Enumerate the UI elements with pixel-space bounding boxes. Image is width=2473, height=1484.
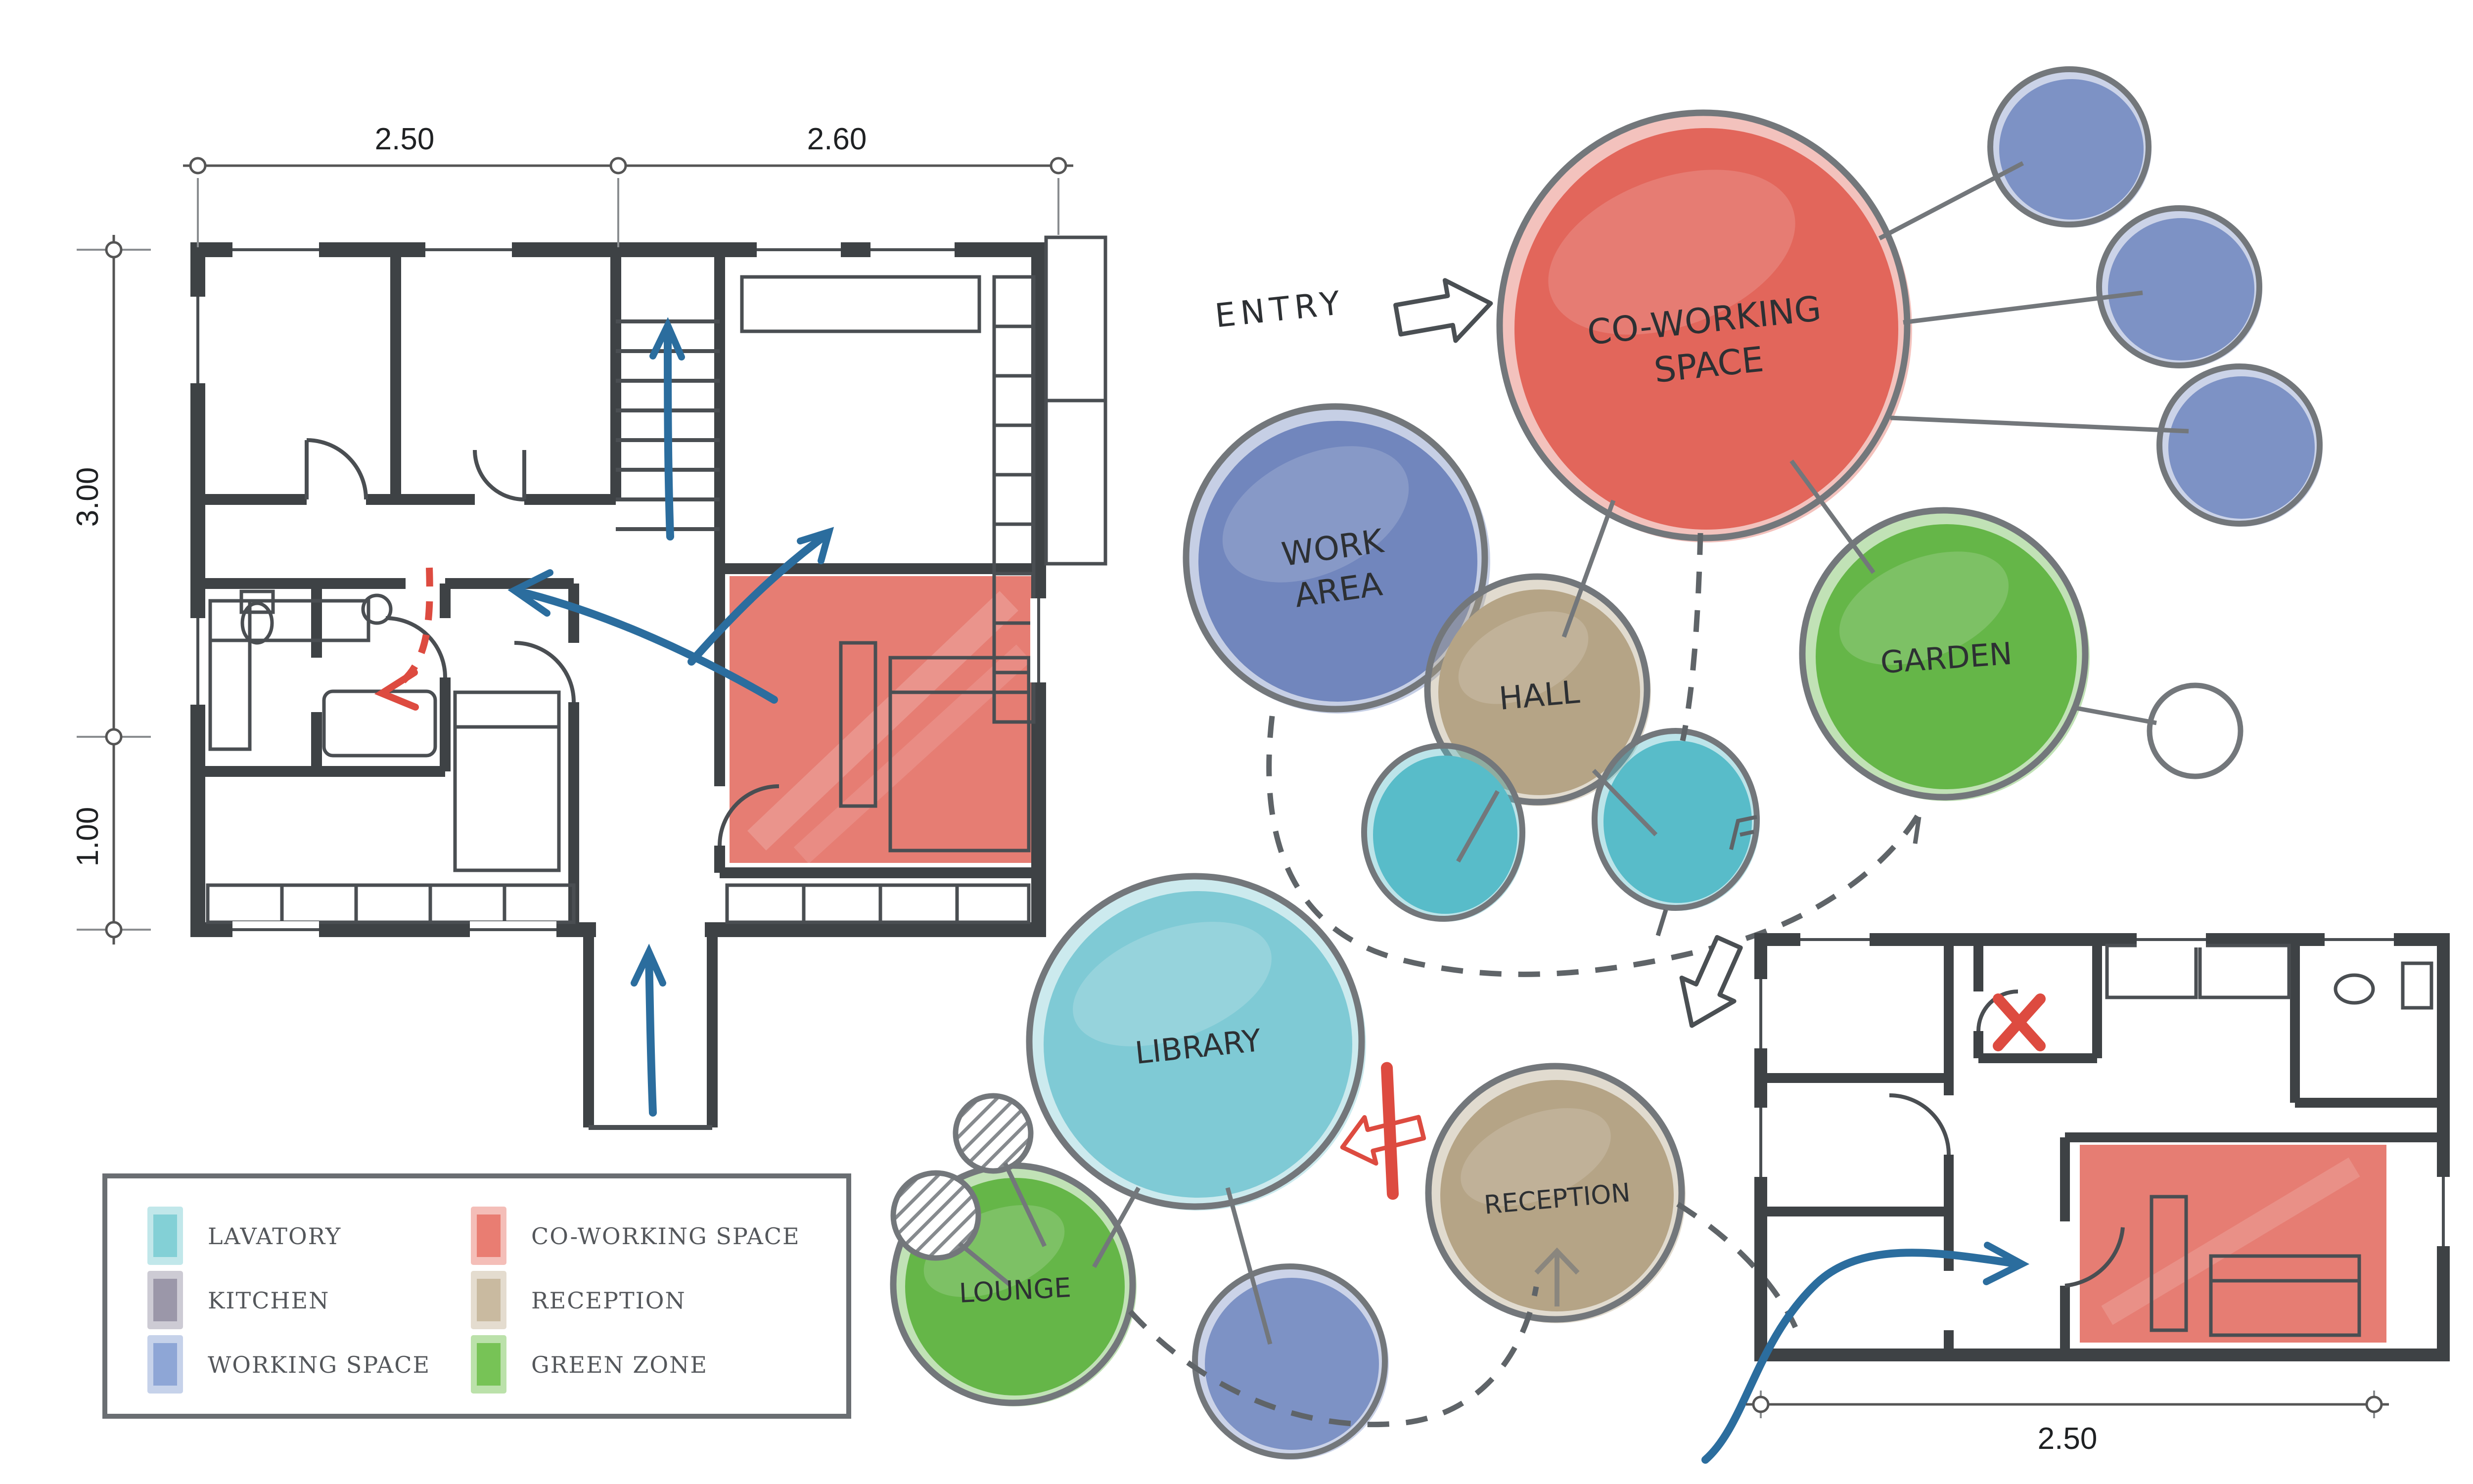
bubble-fill: [1205, 1278, 1379, 1450]
label-hall: HALL: [1498, 674, 1581, 718]
legend-label: LAVATORY: [208, 1223, 341, 1250]
top-dimensions: 2.50 2.60: [183, 122, 1073, 247]
label-lounge: LOUNGE: [958, 1272, 1072, 1309]
corridor-opening: [596, 921, 705, 939]
legend-label: GREEN ZONE: [531, 1351, 708, 1378]
legend-swatch-core: [153, 1343, 177, 1386]
legend-swatch-core: [153, 1214, 177, 1257]
bubble-lavatory-1: [1364, 746, 1525, 922]
legend: LAVATORY KITCHEN WORKING SPACE CO-WORKIN…: [105, 1176, 849, 1416]
main-floor-plan: 2.50 2.60 3.00 1.00: [71, 122, 1105, 1127]
legend-swatch-core: [153, 1279, 177, 1321]
corridor-flow-arrow: [649, 954, 653, 1113]
hatched-service-circle-3: [893, 1173, 978, 1258]
bubble-working-space-satellite-1: [1990, 69, 2152, 227]
entry-arrow-icon: [1393, 273, 1496, 350]
bubble-fill: [1603, 741, 1752, 903]
legend-label: RECEPTION: [531, 1287, 686, 1314]
legend-label: KITCHEN: [208, 1287, 329, 1314]
diagram-canvas: 2.50 2.60 3.00 1.00: [0, 0, 2473, 1484]
side-dimensions: 3.00 1.00: [71, 235, 151, 944]
bubble-fill: [1373, 756, 1517, 914]
entry-label: ENTRY: [1213, 283, 1347, 335]
bubble-working-space-satellite-2: [2099, 208, 2262, 368]
small-floor-plan: 2.50: [1705, 932, 2451, 1460]
dim-top-2: 2.60: [807, 122, 867, 156]
bubble-working-space-satellite-3: [2159, 366, 2323, 527]
bubble-lavatory-2: [1595, 731, 1760, 911]
dim-top-1: 2.50: [375, 122, 435, 156]
bubble-fill: [1999, 79, 2144, 220]
hatched-service-circle-2: [956, 1096, 1031, 1171]
legend-swatch-core: [477, 1343, 501, 1386]
dim-side-1: 3.00: [71, 467, 105, 527]
dim-small-bottom: 2.50: [2038, 1422, 2098, 1456]
bubble-working-space-satellite-4: [1195, 1266, 1389, 1460]
stair-flow-arrow: [668, 329, 670, 537]
hatched-service-circle-1: [2150, 685, 2241, 776]
legend-label: CO-WORKING SPACE: [531, 1223, 800, 1250]
legend-label: WORKING SPACE: [208, 1351, 430, 1378]
small-plan-dimension: 2.50: [1746, 1391, 2389, 1456]
bubble-fill: [2168, 376, 2315, 519]
dim-side-2: 1.00: [71, 807, 105, 867]
legend-swatch-core: [477, 1214, 501, 1257]
bubble-fill: [2108, 218, 2254, 360]
x-mark-icon: [1998, 999, 2040, 1046]
legend-swatch-core: [477, 1279, 501, 1321]
